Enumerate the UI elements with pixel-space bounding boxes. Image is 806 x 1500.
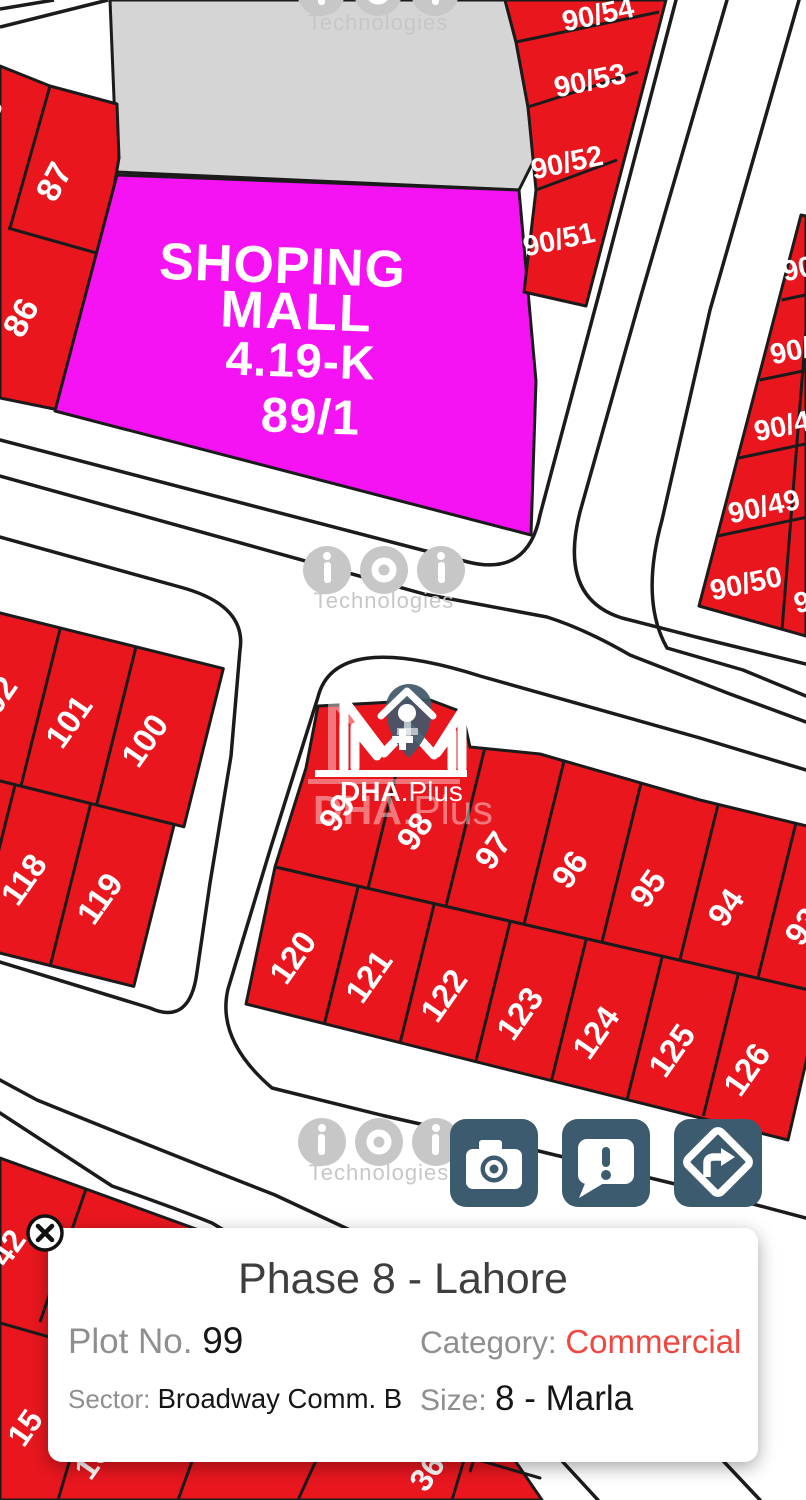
svg-text:Size: 8 - Marla: Size: 8 - Marla: [420, 1379, 634, 1418]
svg-text:Plot No. 99: Plot No. 99: [68, 1320, 243, 1361]
svg-text:4.19-K: 4.19-K: [225, 332, 377, 390]
svg-text:Technologies: Technologies: [314, 588, 454, 613]
svg-text:89/1: 89/1: [260, 388, 361, 445]
svg-text:Category: Commercial: Category: Commercial: [420, 1323, 741, 1360]
svg-text:DHA.Plus: DHA.Plus: [313, 787, 493, 833]
svg-text:Phase 8 - Lahore: Phase 8 - Lahore: [238, 1255, 568, 1303]
svg-text:Technologies: Technologies: [308, 10, 448, 35]
svg-text:Sector: Broadway Comm. B: Sector: Broadway Comm. B: [68, 1383, 402, 1414]
svg-text:Technologies: Technologies: [309, 1160, 449, 1185]
